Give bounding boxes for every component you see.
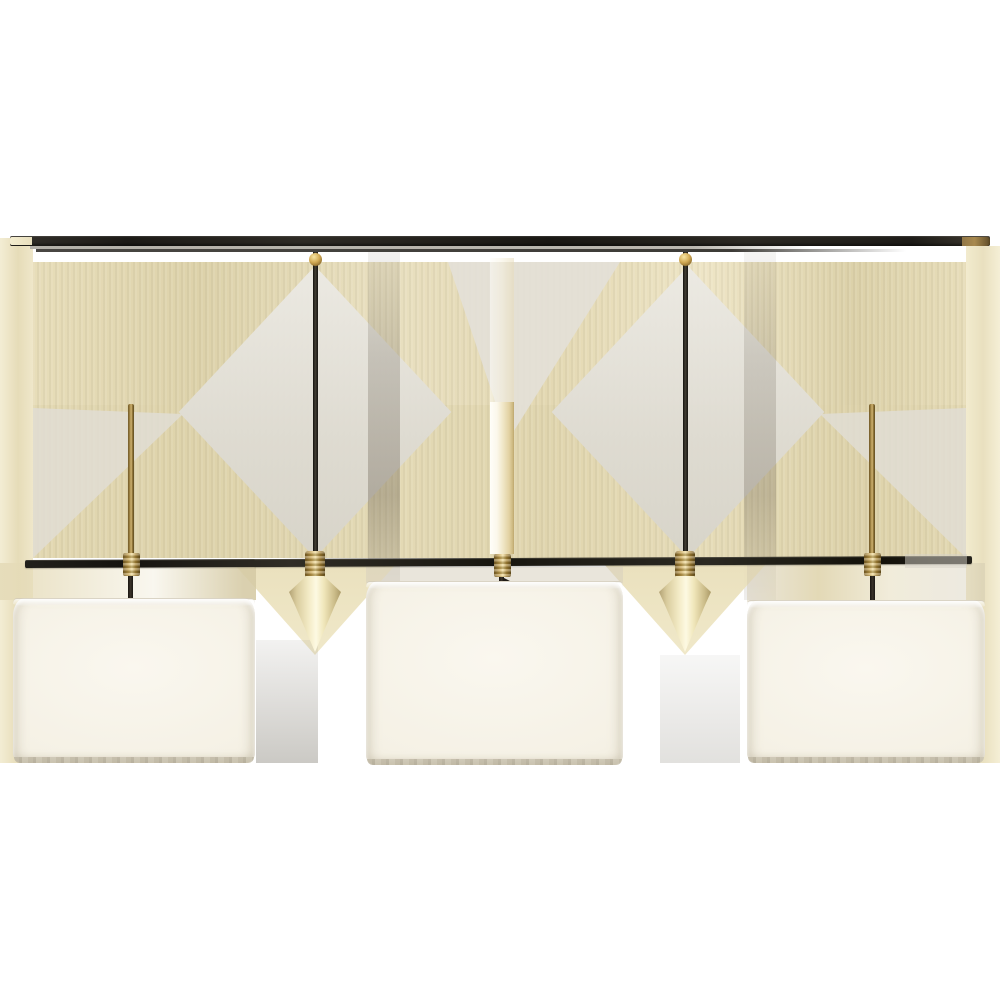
top-rail-underline: [36, 249, 906, 252]
brass-ball-finial-left: [309, 253, 322, 266]
brass-collar-rod-middle: [494, 554, 511, 577]
artifact-gray-gap-right: [660, 655, 740, 763]
lower-rail-fade-overlay: [905, 554, 967, 568]
down-stem-left: [313, 252, 318, 562]
product-image-chandelier: [0, 0, 1000, 1000]
top-rail-left-end-cap: [10, 237, 32, 245]
shade-bottom-rim: [367, 759, 622, 765]
brass-collar-rod-right: [864, 553, 881, 576]
top-rail-right-brass-cap: [962, 237, 990, 246]
brass-collar-rod-left: [123, 553, 140, 576]
brass-rod-left: [128, 404, 134, 556]
drum-shade-right: [747, 600, 985, 763]
artifact-gray-strip-right: [744, 252, 776, 600]
drum-shade-middle: [366, 581, 623, 765]
shade-top-rim: [366, 581, 623, 590]
drum-shade-left: [13, 598, 255, 763]
top-rail-bar: [10, 236, 990, 246]
brass-ball-finial-right: [679, 253, 692, 266]
shade-top-rim: [13, 598, 255, 607]
brass-collar-spear-left: [305, 551, 325, 578]
down-stem-right: [683, 252, 688, 562]
shade-top-rim: [747, 600, 985, 609]
artifact-gray-gap-left: [256, 640, 318, 763]
center-column-upper: [490, 258, 514, 404]
shade-bottom-rim: [748, 757, 984, 763]
shade-bottom-rim: [14, 757, 254, 763]
center-column: [490, 402, 514, 554]
brass-rod-right: [869, 404, 875, 556]
artifact-gray-strip-left: [368, 252, 400, 600]
brass-collar-spear-right: [675, 551, 695, 578]
